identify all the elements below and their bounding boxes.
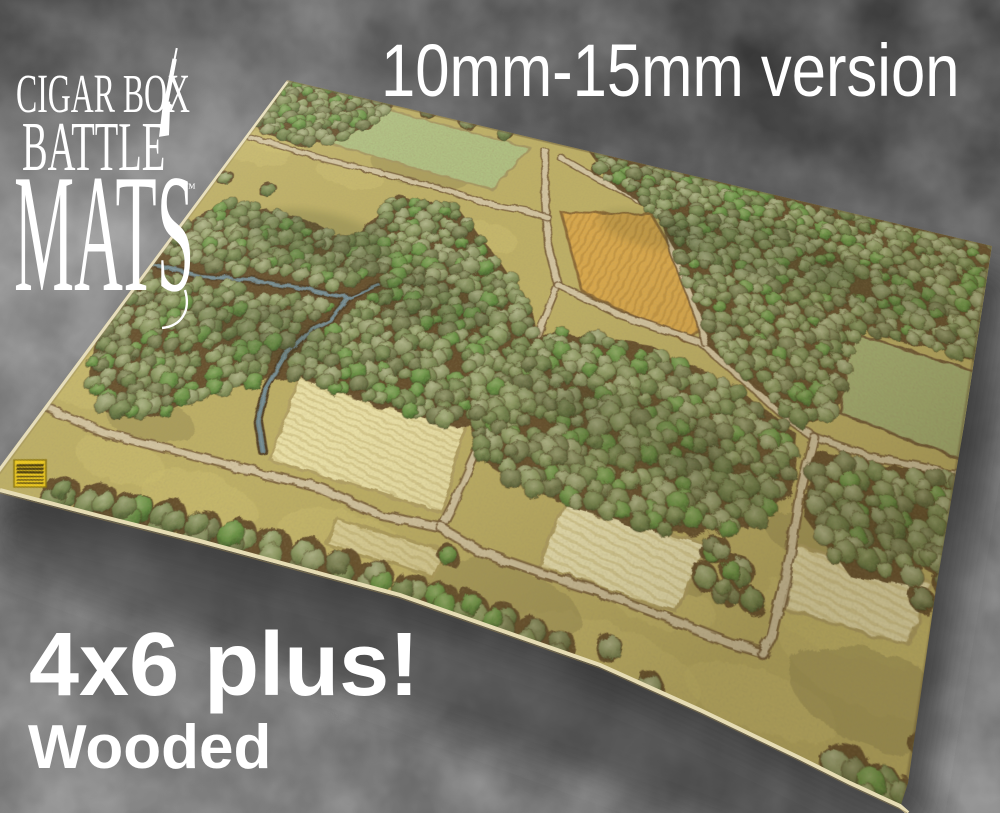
svg-text:MATS: MATS: [14, 139, 194, 327]
svg-text:™: ™: [183, 180, 196, 195]
